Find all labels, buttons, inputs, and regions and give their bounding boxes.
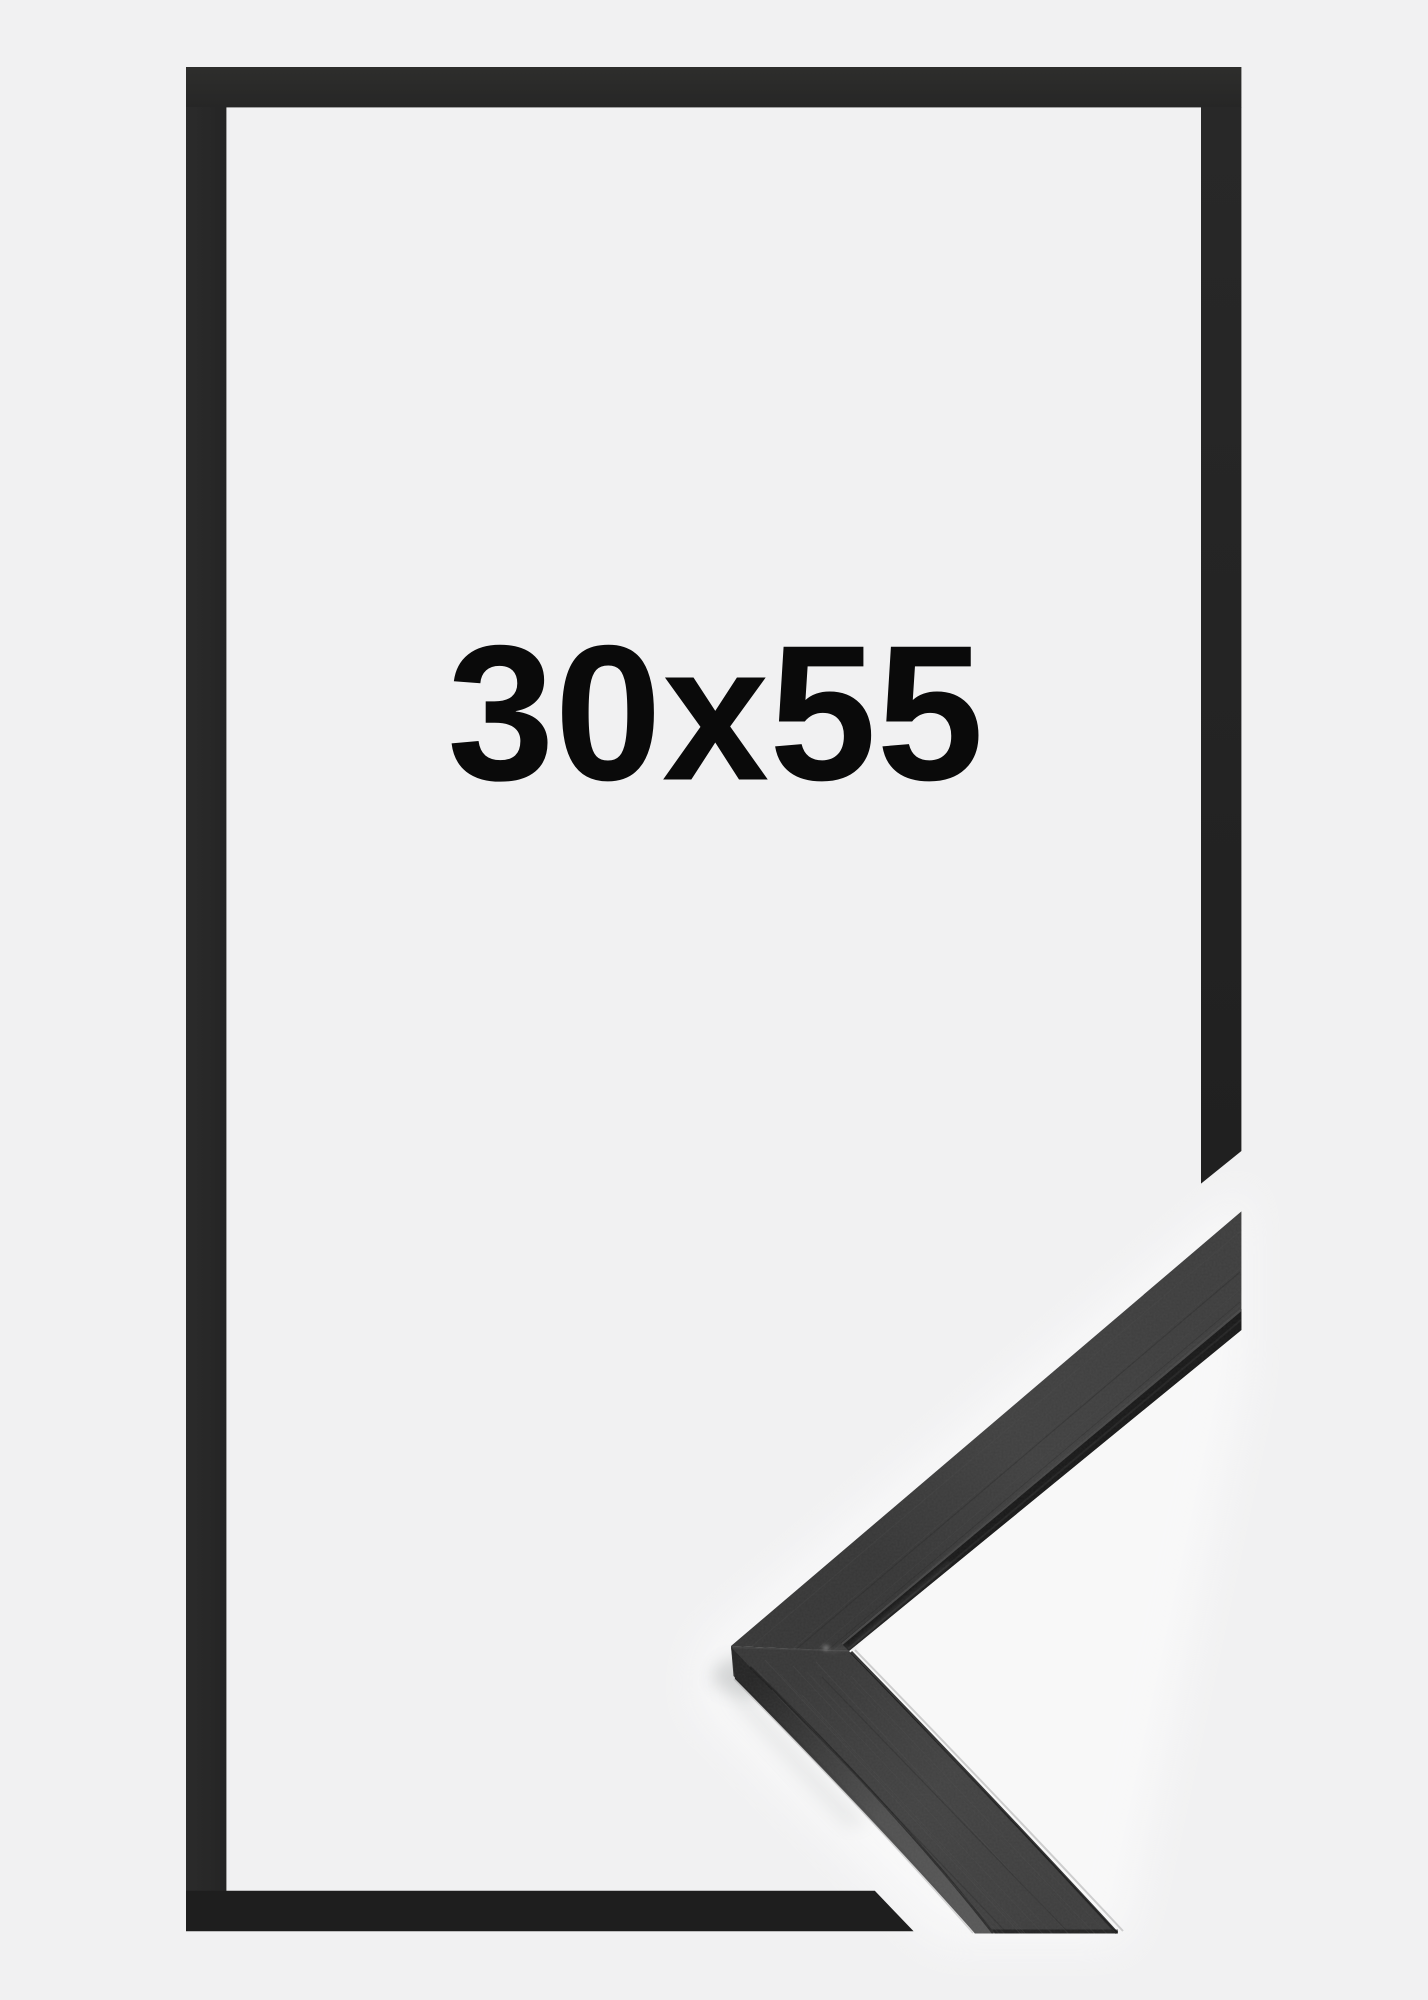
svg-text:30x55: 30x55 xyxy=(447,605,984,821)
